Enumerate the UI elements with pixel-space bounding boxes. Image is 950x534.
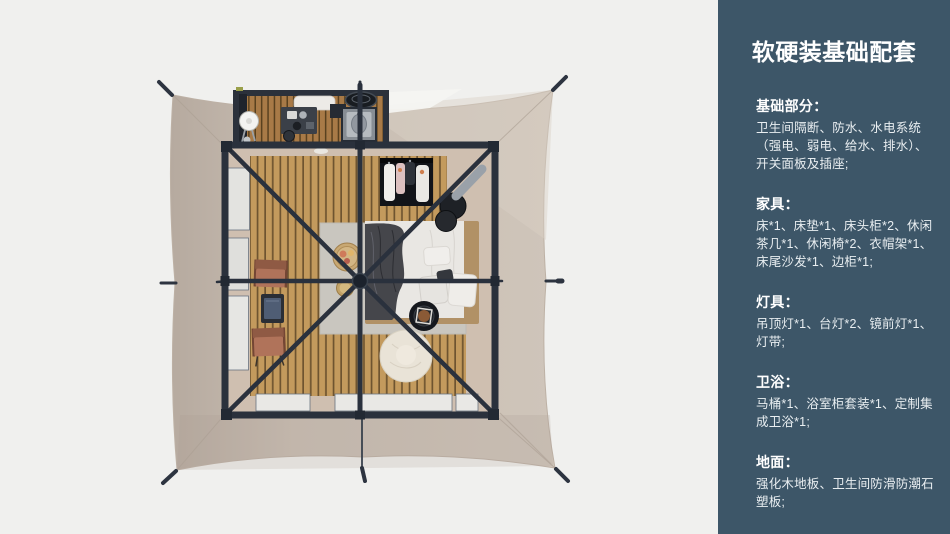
door-mats bbox=[256, 394, 478, 411]
window-panels bbox=[228, 168, 250, 370]
spec-section-basics: 基础部分： 卫生间隔断、防水、水电系统 （强电、弱电、给水、排水）、 开关面板及… bbox=[756, 97, 934, 173]
panel-title: 软硬装基础配套 bbox=[718, 38, 950, 66]
section-body: 床*1、床垫*1、床头柜*2、休闲 茶几*1、休闲椅*2、衣帽架*1、 床尾沙发… bbox=[756, 217, 934, 271]
section-heading: 灯具： bbox=[756, 293, 934, 312]
section-body: 马桶*1、浴室柜套装*1、定制集 成卫浴*1; bbox=[756, 395, 934, 431]
floorplan-svg bbox=[0, 0, 718, 534]
section-heading: 卫浴： bbox=[756, 373, 934, 392]
spec-section-bathroom: 卫浴： 马桶*1、浴室柜套装*1、定制集 成卫浴*1; bbox=[756, 373, 934, 431]
section-heading: 家具： bbox=[756, 195, 934, 214]
pole-hub bbox=[353, 274, 368, 289]
section-heading: 地面： bbox=[756, 453, 934, 472]
spec-section-lighting: 灯具： 吊顶灯*1、台灯*2、镜前灯*1、 灯带; bbox=[756, 293, 934, 351]
slide: 软硬装基础配套 基础部分： 卫生间隔断、防水、水电系统 （强电、弱电、给水、排水… bbox=[0, 0, 950, 534]
clothes-rack bbox=[380, 158, 433, 206]
bean-bag bbox=[380, 330, 432, 382]
lounge-chair-1 bbox=[254, 259, 288, 287]
section-body: 强化木地板、卫生间防滑防潮石 塑板; bbox=[756, 475, 934, 511]
floorplan-render bbox=[0, 0, 718, 534]
spec-section-flooring: 地面： 强化木地板、卫生间防滑防潮石 塑板; bbox=[756, 453, 934, 511]
section-body: 卫生间隔断、防水、水电系统 （强电、弱电、给水、排水）、 开关面板及插座; bbox=[756, 119, 934, 173]
spec-section-furniture: 家具： 床*1、床垫*1、床头柜*2、休闲 茶几*1、休闲椅*2、衣帽架*1、 … bbox=[756, 195, 934, 271]
round-side-table bbox=[409, 301, 439, 331]
section-heading: 基础部分： bbox=[756, 97, 934, 116]
spec-panel: 软硬装基础配套 基础部分： 卫生间隔断、防水、水电系统 （强电、弱电、给水、排水… bbox=[718, 0, 950, 534]
spec-sections: 基础部分： 卫生间隔断、防水、水电系统 （强电、弱电、给水、排水）、 开关面板及… bbox=[718, 97, 950, 511]
tea-table bbox=[261, 294, 284, 323]
section-body: 吊顶灯*1、台灯*2、镜前灯*1、 灯带; bbox=[756, 315, 934, 351]
